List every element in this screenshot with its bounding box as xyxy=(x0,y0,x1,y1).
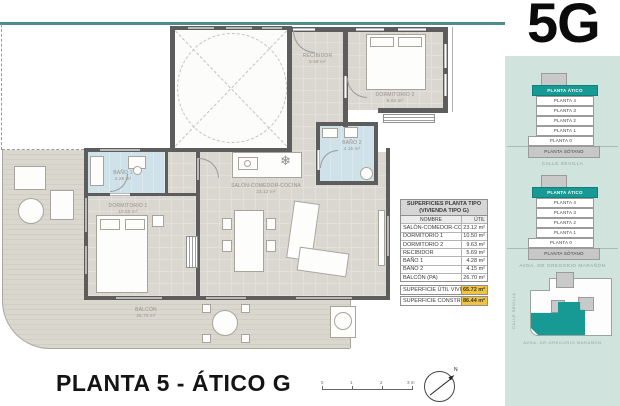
sink-icon xyxy=(244,160,251,167)
summary-value-highlight: 65.72 m² xyxy=(461,286,487,294)
chair xyxy=(202,334,211,343)
row-value: 26.70 m² xyxy=(461,274,487,281)
room-area: 23.12 m² xyxy=(216,189,316,194)
core-block xyxy=(578,297,594,311)
hob-icon: ❄ xyxy=(280,153,291,169)
footprint-notch xyxy=(530,278,550,291)
window xyxy=(188,27,214,29)
floorplan-page: ❄ SALÓN-COMEDOR-COCINA 23.12 m² DORMITOR… xyxy=(0,0,620,406)
room-label-bano2: BAÑO 2 4.15 m² xyxy=(330,140,374,151)
room-label-salon: SALÓN-COMEDOR-COCINA 23.12 m² xyxy=(216,183,316,194)
wall-segment xyxy=(165,152,168,193)
pillow xyxy=(100,219,120,230)
table-row: BAÑO 2 4.15 m² xyxy=(401,266,487,274)
window xyxy=(85,198,87,232)
window xyxy=(116,297,162,299)
level-1: PLANTA 1 xyxy=(536,126,594,136)
row-name: BAÑO 2 xyxy=(401,266,461,273)
armchair xyxy=(14,166,46,190)
wall-segment xyxy=(316,181,378,185)
level-0: PLANTA 0 xyxy=(528,238,594,248)
row-value: 9.63 m² xyxy=(461,241,487,248)
tv-unit xyxy=(378,210,385,266)
row-name: BAÑO 1 xyxy=(401,257,461,264)
window xyxy=(356,28,384,31)
areas-table-title-line2: (VIVIENDA TIPO G) xyxy=(401,208,487,215)
north-arrow-icon: N xyxy=(424,368,460,404)
chair xyxy=(241,304,250,313)
louver-grille xyxy=(383,114,435,123)
sidebar: PLANTA ÁTICO PLANTA 4 PLANTA 3 PLANTA 2 … xyxy=(505,56,620,406)
page-title: PLANTA 5 - ÁTICO G xyxy=(56,370,291,397)
row-value: 10.50 m² xyxy=(461,233,487,240)
row-value: 4.15 m² xyxy=(461,266,487,273)
table-row: DORMITORIO 1 10.50 m² xyxy=(401,233,487,241)
level-2: PLANTA 2 xyxy=(536,116,594,126)
room-label-recibidor: RECIBIDOR 5.69 m² xyxy=(292,53,343,64)
level-4: PLANTA 4 xyxy=(536,96,594,106)
round-table xyxy=(18,198,44,224)
pillow xyxy=(398,37,422,47)
row-name: DORMITORIO 1 xyxy=(401,233,461,240)
window xyxy=(100,149,140,151)
level-4: PLANTA 4 xyxy=(536,198,594,208)
scale-label: 3 m xyxy=(407,380,415,385)
room-label-dormitorio1: DORMITORIO 1 10.50 m² xyxy=(97,203,159,214)
stack-caption: CALLE SEVILLA xyxy=(505,161,620,166)
street-label-bottom: AVDA. DR GREGORIO MARAÑÓN xyxy=(505,340,620,345)
window xyxy=(444,74,447,96)
scale-label: 1 xyxy=(350,380,353,385)
wall-segment xyxy=(374,122,378,185)
row-value: 23.12 m² xyxy=(461,224,487,231)
areas-table-title: SUPERFICIES PLANTA TIPO (VIVIENDA TIPO G… xyxy=(401,200,487,216)
wall-segment xyxy=(88,193,196,196)
table-row: SALÓN-COMEDOR-COCINA 23.12 m² xyxy=(401,224,487,232)
row-value: 5.69 m² xyxy=(461,249,487,256)
terrace-glass-line xyxy=(0,22,505,25)
room-area: 9.63 m² xyxy=(364,98,426,103)
side-table xyxy=(152,215,164,227)
siteplan: CALLE SEVILLA AVDA. DR GREGORIO MARAÑÓN xyxy=(505,272,620,352)
street-label-left: CALLE SEVILLA xyxy=(511,286,519,336)
chair xyxy=(266,240,276,252)
row-value: 4.28 m² xyxy=(461,257,487,264)
room-area: 26.70 m² xyxy=(116,313,176,318)
window xyxy=(387,216,389,256)
col-util: ÚTIL xyxy=(461,216,487,223)
areas-table: SUPERFICIES PLANTA TIPO (VIVIENDA TIPO G… xyxy=(400,199,488,306)
balcony-dashed-boundary xyxy=(2,149,84,150)
window xyxy=(226,27,252,29)
dining-table xyxy=(234,210,264,272)
scale-label: 2 xyxy=(380,380,383,385)
north-label: N xyxy=(454,367,458,373)
scale-tick xyxy=(382,386,383,390)
window xyxy=(444,44,447,68)
areas-table-header: NOMBRE ÚTIL xyxy=(401,216,487,224)
areas-table-title-line1: SUPERFICIES PLANTA TIPO xyxy=(401,201,487,208)
railing-line xyxy=(452,27,453,112)
level-sotano: PLANTA SÓTANO xyxy=(528,146,600,158)
stack-caption: AVDA. DR GREGORIO MARAÑÓN xyxy=(505,263,620,268)
closet xyxy=(186,236,198,268)
wall-segment xyxy=(316,122,378,126)
level-0: PLANTA 0 xyxy=(528,136,594,146)
building-stack-1: PLANTA ÁTICO PLANTA 4 PLANTA 3 PLANTA 2 … xyxy=(505,73,620,168)
window xyxy=(398,28,426,31)
window xyxy=(85,246,87,274)
toilet-icon xyxy=(344,127,358,138)
room-area: 4.15 m² xyxy=(330,146,374,151)
room-label-bano1: BAÑO 1 4.28 m² xyxy=(98,170,148,181)
window xyxy=(262,27,282,29)
armchair xyxy=(50,190,74,220)
room-area: 5.69 m² xyxy=(292,59,343,64)
scale-label: 0 xyxy=(321,380,324,385)
room-area: 10.50 m² xyxy=(97,209,159,214)
level-atico: PLANTA ÁTICO xyxy=(532,85,598,96)
room-area: 4.28 m² xyxy=(98,176,148,181)
level-atico: PLANTA ÁTICO xyxy=(532,187,598,198)
chair xyxy=(241,334,250,343)
shower-icon xyxy=(360,167,373,180)
summary-row-util: SUPERFICIE ÚTIL VIVIENDA 65.72 m² xyxy=(400,285,488,295)
level-sotano: PLANTA SÓTANO xyxy=(528,248,600,260)
chair xyxy=(202,304,211,313)
level-1: PLANTA 1 xyxy=(536,228,594,238)
table-row: BALCÓN (PA) 26.70 m² xyxy=(401,274,487,281)
unit-code: 5G xyxy=(527,0,600,55)
row-name: SALÓN-COMEDOR-COCINA xyxy=(401,224,461,231)
level-2: PLANTA 2 xyxy=(536,218,594,228)
room-label-balcon: BALCÓN 26.70 m² xyxy=(116,307,176,318)
summary-row-construida: SUPERFICIE CONSTRUIDA 86.44 m² xyxy=(400,296,488,306)
chair xyxy=(222,240,232,252)
scale-line xyxy=(322,389,412,390)
core-block xyxy=(556,272,574,288)
level-3: PLANTA 3 xyxy=(536,106,594,116)
table-row: RECIBIDOR 5.69 m² xyxy=(401,249,487,257)
wall-segment xyxy=(170,26,175,152)
summary-name: SUPERFICIE ÚTIL VIVIENDA xyxy=(401,286,461,294)
pillow xyxy=(370,37,394,47)
building-stack-2: PLANTA ÁTICO PLANTA 4 PLANTA 3 PLANTA 2 … xyxy=(505,175,620,270)
scale-tick xyxy=(412,386,413,390)
ac-fan-icon xyxy=(334,312,352,330)
wall-segment xyxy=(287,26,292,152)
room-label-dormitorio2: DORMITORIO 2 9.63 m² xyxy=(364,92,426,103)
level-3: PLANTA 3 xyxy=(536,208,594,218)
window xyxy=(296,297,352,299)
boundary-dashed-line xyxy=(1,24,2,150)
scale-tick xyxy=(352,386,353,390)
table-row: DORMITORIO 2 9.63 m² xyxy=(401,241,487,249)
scale-tick xyxy=(322,386,323,390)
table-row: BAÑO 1 4.28 m² xyxy=(401,257,487,265)
areas-table-main: SUPERFICIES PLANTA TIPO (VIVIENDA TIPO G… xyxy=(400,199,488,282)
door-gap xyxy=(110,193,130,196)
pillow xyxy=(125,219,145,230)
scale-bar: 0 1 2 3 m xyxy=(322,380,416,394)
chair xyxy=(222,218,232,230)
summary-name: SUPERFICIE CONSTRUIDA xyxy=(401,297,461,305)
row-name: BALCÓN (PA) xyxy=(401,274,461,281)
wall-segment xyxy=(443,27,448,113)
wall-segment xyxy=(378,108,448,113)
row-name: RECIBIDOR xyxy=(401,249,461,256)
round-table xyxy=(212,310,238,336)
chair xyxy=(266,218,276,230)
sink xyxy=(322,128,338,138)
summary-value-highlight: 86.44 m² xyxy=(461,297,487,305)
col-nombre: NOMBRE xyxy=(401,216,461,223)
row-name: DORMITORIO 2 xyxy=(401,241,461,248)
window xyxy=(206,297,246,299)
